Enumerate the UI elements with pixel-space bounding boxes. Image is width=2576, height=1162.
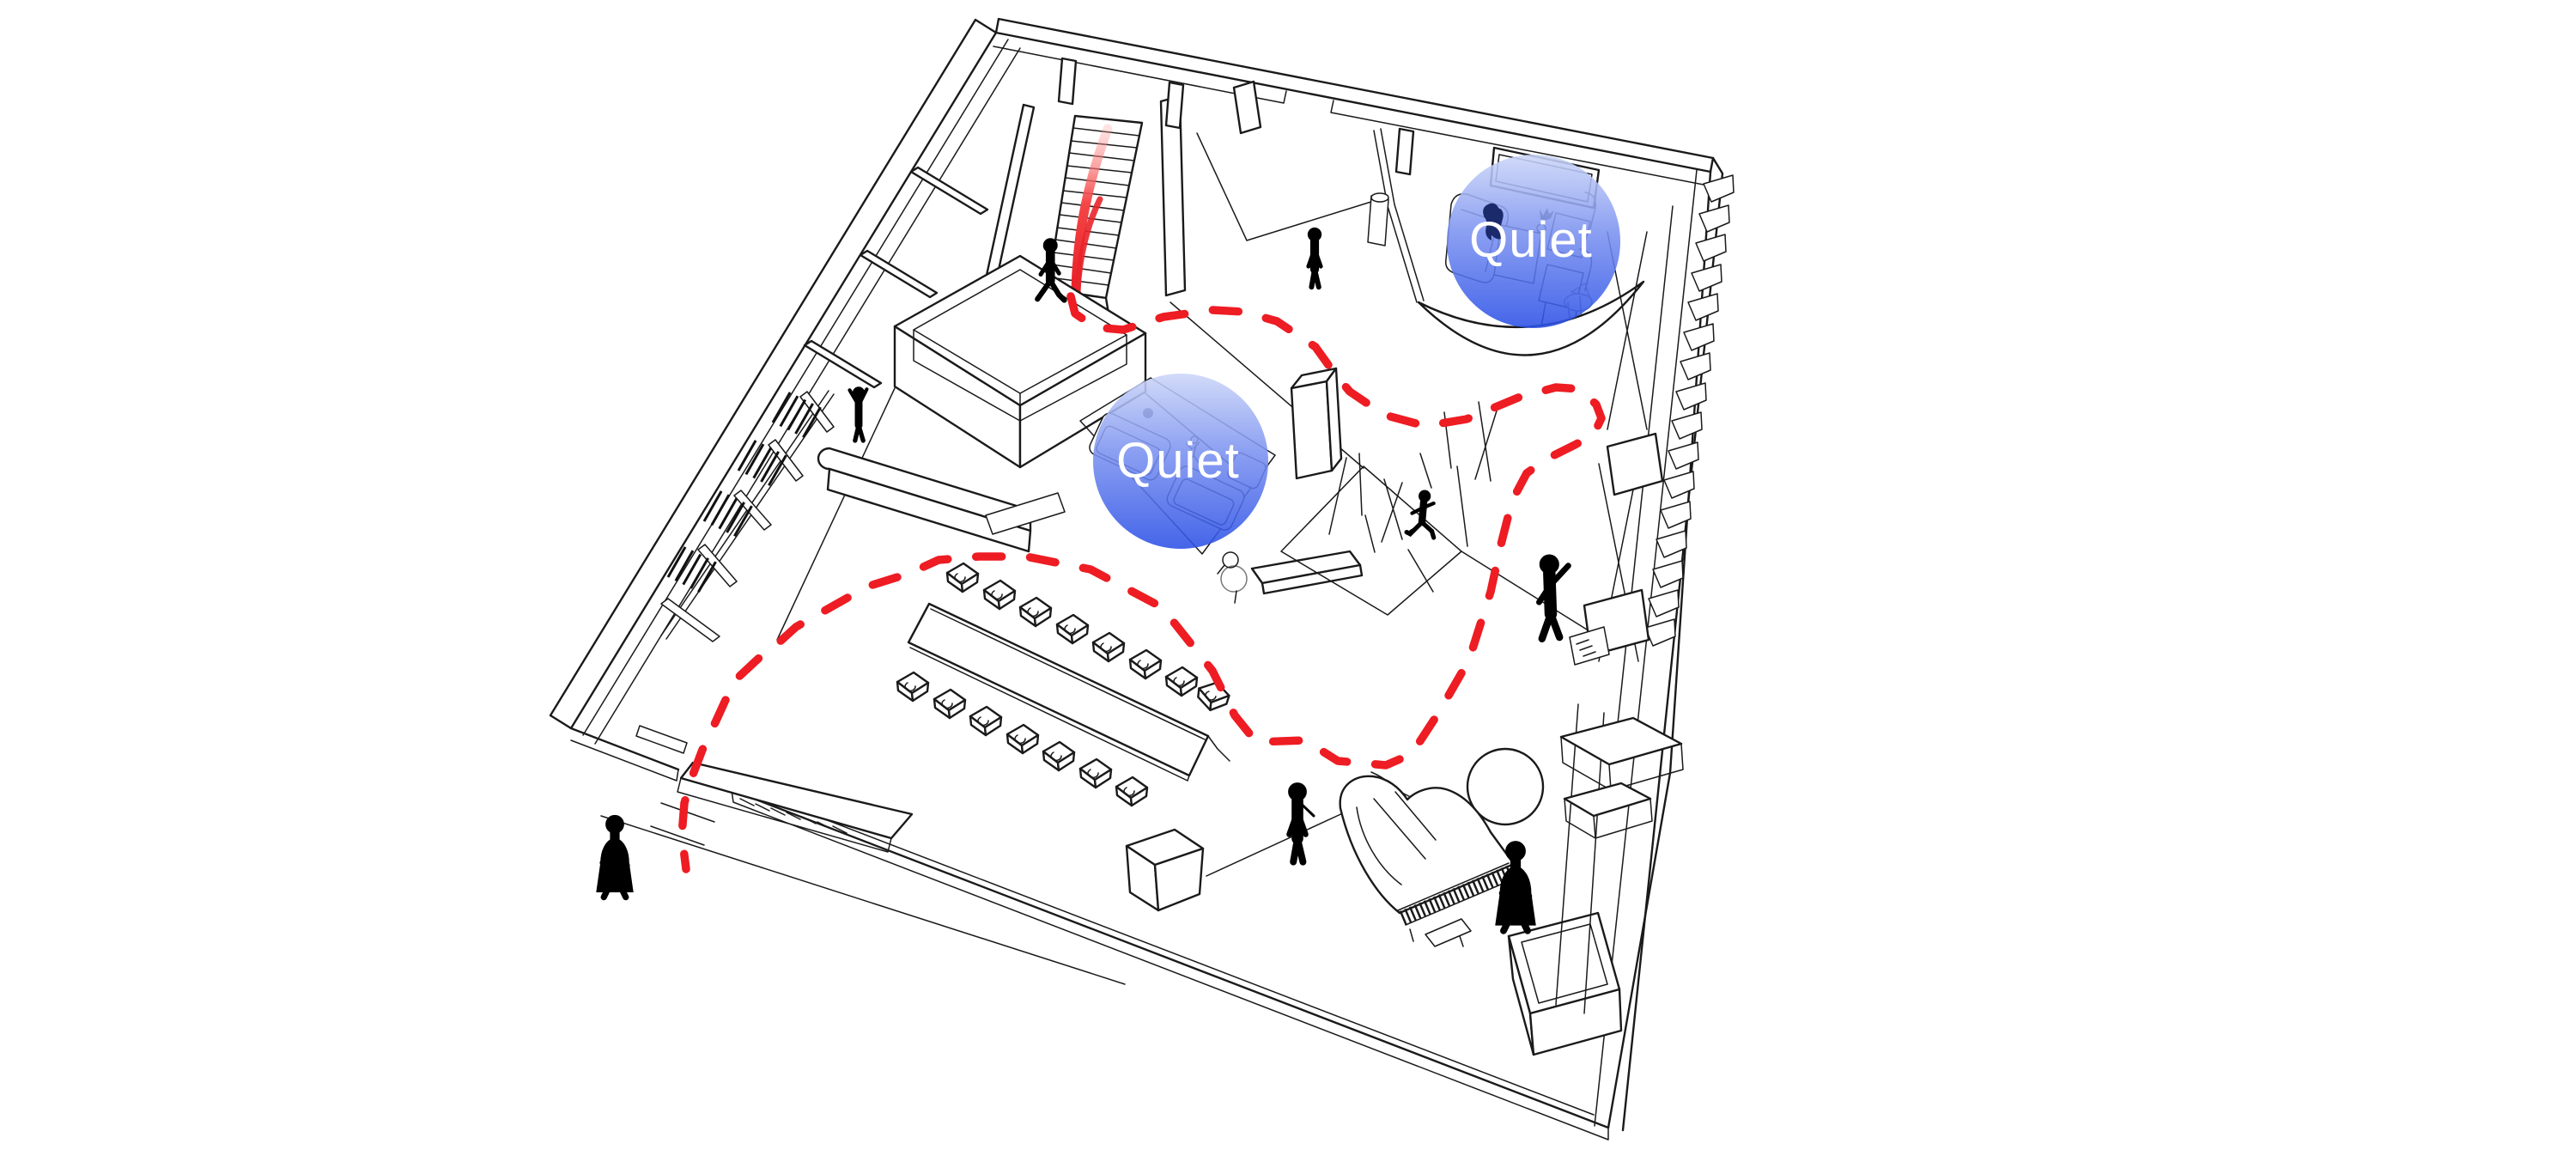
wall-post: [1059, 58, 1076, 104]
watering-pot: [1221, 566, 1247, 592]
conference-chair: [1093, 633, 1124, 661]
conference-chair: [1043, 742, 1074, 770]
floor-plan-svg: Quiet Quiet: [0, 0, 2576, 1162]
bookshelf-wall: [660, 384, 834, 642]
piano-area: [1127, 749, 1621, 1055]
stage-box-upper: [1561, 718, 1681, 764]
conference-chair: [1195, 679, 1231, 714]
conference-chair: [1020, 598, 1051, 626]
stage-box-lower: [1564, 783, 1650, 816]
door-panel: [1234, 82, 1261, 133]
wall-post: [1396, 129, 1413, 174]
walking-woman-entrance: [597, 816, 633, 897]
conference-chair: [984, 581, 1015, 609]
bleacher-steps: [1645, 175, 1734, 646]
conference-chair: [947, 563, 978, 592]
conference-chair: [1007, 725, 1038, 753]
standing-man-by-doorway: [1308, 228, 1321, 287]
standing-man-by-piano: [1289, 783, 1314, 862]
column-top: [1371, 193, 1388, 202]
entrance: [636, 726, 912, 852]
quiet-zone-label-middle: Quiet: [1116, 433, 1240, 489]
piano-bench: [1425, 919, 1471, 946]
running-woman-center: [1406, 490, 1434, 538]
man-reaching-wall-right: [1539, 555, 1568, 638]
conference-chair: [1116, 777, 1147, 806]
watering-pot-spout: [1218, 565, 1236, 603]
waving-person-at-counter: [850, 387, 867, 441]
conference-chair: [897, 672, 928, 701]
bleacher-landing: [1607, 434, 1662, 495]
diagram-canvas: Quiet Quiet: [0, 0, 2576, 1162]
closet-divider: [805, 341, 881, 387]
conference-chair: [934, 690, 965, 718]
stairwell-wall-left: [986, 105, 1034, 282]
entrance-jamb-wall: [636, 726, 687, 753]
column: [1368, 196, 1388, 246]
conference-chair: [1130, 650, 1161, 678]
small-sign-box: [1570, 627, 1609, 665]
watering-pot-top: [1223, 552, 1238, 568]
conference-chair: [1057, 615, 1088, 643]
conference-area: [897, 563, 1231, 806]
quiet-zone-label-top: Quiet: [1469, 212, 1593, 268]
wall-post: [1166, 82, 1183, 128]
conference-chair: [1166, 667, 1197, 696]
tall-cabinet-front: [1291, 381, 1332, 478]
conference-chair: [1080, 759, 1111, 788]
conference-chair: [970, 707, 1001, 735]
